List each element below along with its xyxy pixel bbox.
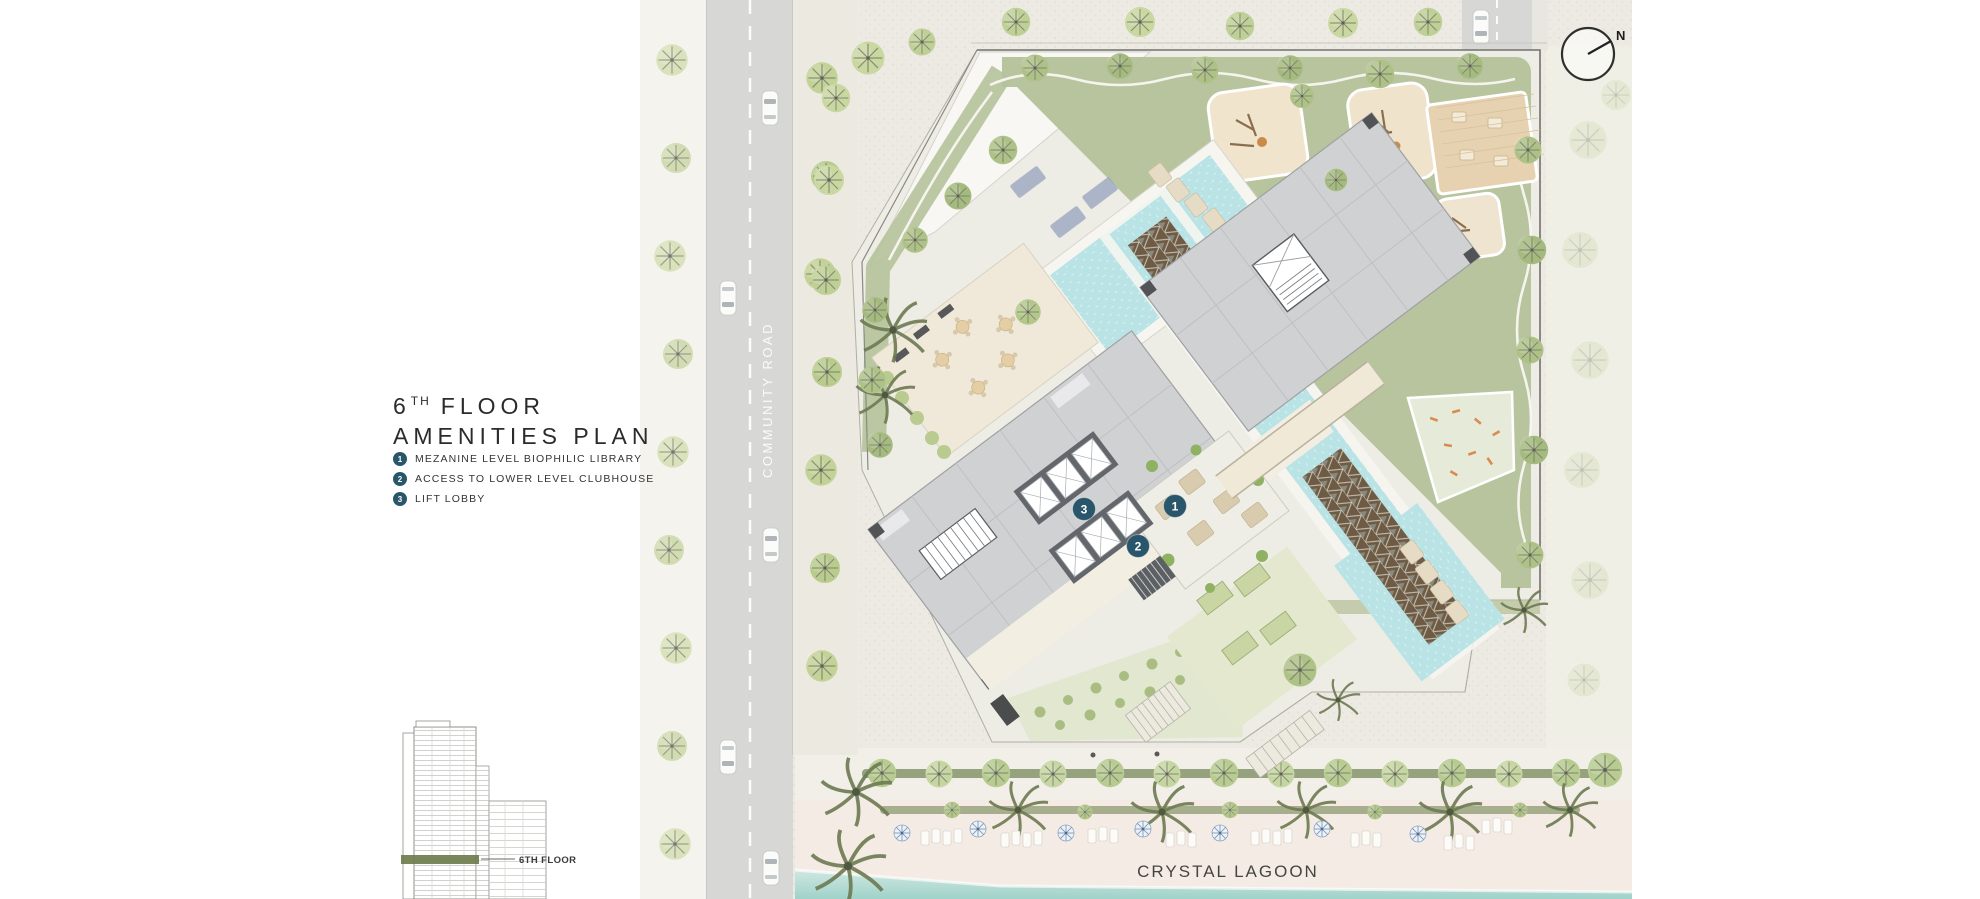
- brochure-page: CRYSTAL LAGOON COMMUNITY ROAD: [0, 0, 1980, 899]
- svg-text:1: 1: [1172, 500, 1179, 514]
- road-label: COMMUNITY ROAD: [760, 322, 775, 478]
- legend-marker-2-icon: 2: [393, 472, 407, 486]
- page-title: 6THFLOOR AMENITIES PLAN: [393, 386, 653, 451]
- legend-marker-3-icon: 3: [393, 492, 407, 506]
- site-plan-rendering: CRYSTAL LAGOON COMMUNITY ROAD: [0, 0, 1980, 899]
- plan-marker-3: 3: [1073, 498, 1096, 521]
- legend-item-lift-lobby: 3 LIFT LOBBY: [393, 492, 654, 506]
- svg-text:3: 3: [1081, 503, 1088, 517]
- building-elevation: 6TH FLOOR: [401, 721, 576, 899]
- legend-item-library: 1 MEZANINE LEVEL BIOPHILIC LIBRARY: [393, 452, 654, 466]
- legend-label: LIFT LOBBY: [415, 493, 485, 505]
- legend-label: ACCESS TO LOWER LEVEL CLUBHOUSE: [415, 473, 654, 485]
- legend-label: MEZANINE LEVEL BIOPHILIC LIBRARY: [415, 453, 642, 465]
- plan-marker-1: 1: [1164, 495, 1187, 518]
- lagoon-waterfront: CRYSTAL LAGOON: [795, 748, 1632, 899]
- plan-marker-2: 2: [1127, 535, 1150, 558]
- legend-marker-1-icon: 1: [393, 452, 407, 466]
- sixth-floor-band: [401, 855, 479, 864]
- legend: 1 MEZANINE LEVEL BIOPHILIC LIBRARY 2 ACC…: [393, 452, 654, 512]
- legend-item-clubhouse-access: 2 ACCESS TO LOWER LEVEL CLUBHOUSE: [393, 472, 654, 486]
- lagoon-label: CRYSTAL LAGOON: [1137, 862, 1319, 881]
- page-title-line1: 6THFLOOR: [393, 386, 653, 421]
- page-title-line2: AMENITIES PLAN: [393, 421, 653, 451]
- svg-text:2: 2: [1135, 540, 1142, 554]
- compass-label: N: [1616, 28, 1625, 43]
- elevation-floor-label: 6TH FLOOR: [519, 855, 576, 866]
